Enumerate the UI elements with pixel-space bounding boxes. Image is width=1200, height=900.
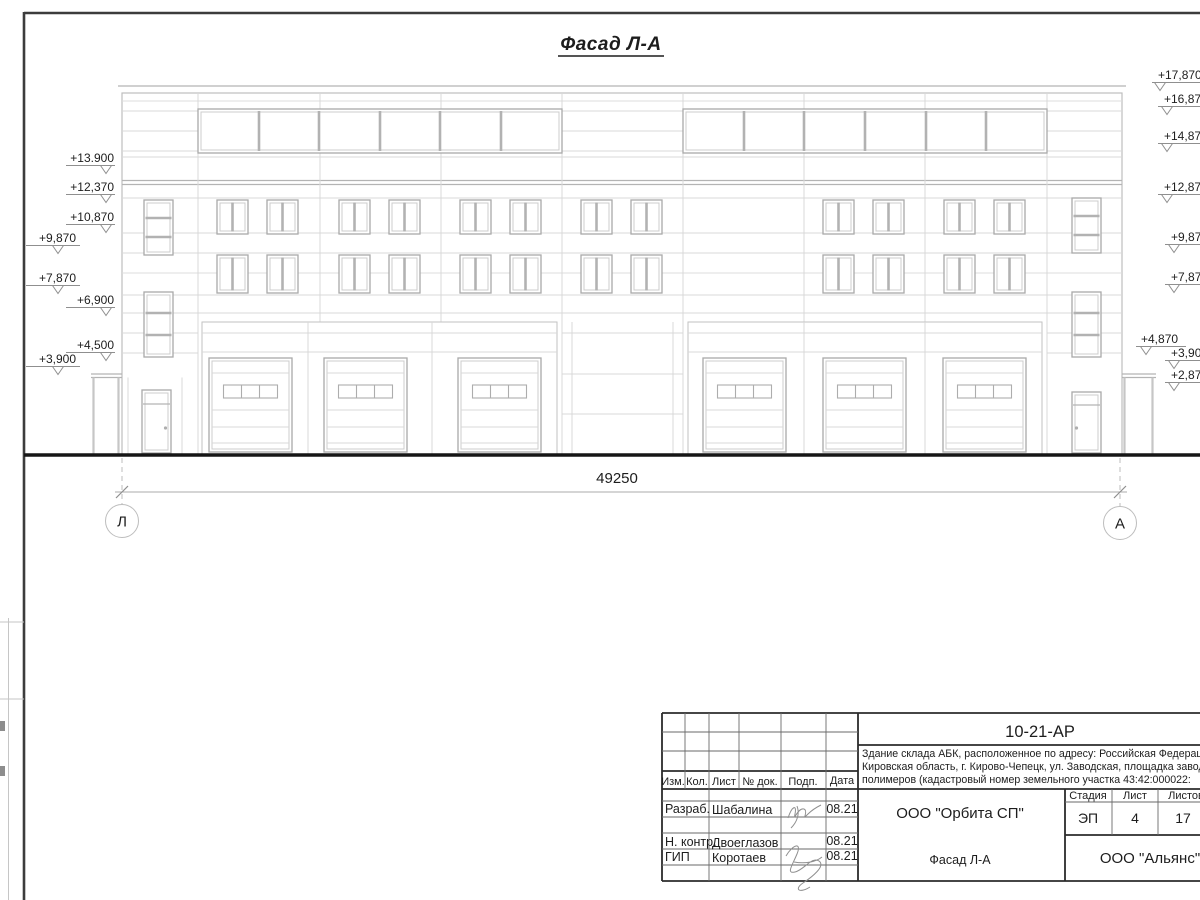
windows-upper-row [217,200,1025,234]
sheet-view-name: Фасад Л-А [929,853,991,867]
sheet-header: Лист [1123,790,1147,802]
elevation-mark: +14,870 [1158,129,1200,152]
role-ncontrol: Н. контр. [665,835,717,849]
elevation-value: +12,870 [1164,180,1200,194]
margin-stamp-fragment [0,766,5,776]
elevation-mark: +7,870 [26,271,80,294]
grid-axis-label-right: А [1115,516,1125,533]
col-header-kol: Кол. [686,776,708,788]
elevation-value: +3,900 [1171,346,1200,360]
ribbon-window-band-left [198,109,562,153]
elevation-mark: +3,900 [26,352,80,375]
elevation-value: +6,900 [77,293,114,307]
elevation-mark: +13.900 [66,151,115,174]
role-developer: Разраб. [665,802,710,816]
elevation-mark: +12,870 [1158,180,1200,203]
dimension-value: 49250 [596,470,638,487]
dimension-and-axes: 49250 Л А [106,458,1137,540]
elevation-mark: +3,900 [1165,346,1200,369]
elevation-value: +9,870 [1171,230,1200,244]
view-title: Фасад Л-А [558,34,664,56]
grid-axis-label-left: Л [117,514,127,531]
ribbon-window-band-right [683,109,1047,153]
elevation-value: +16,870 [1164,92,1200,106]
elevation-value: +4,500 [77,338,114,352]
elevation-mark: +16,870 [1158,92,1200,115]
facade-linework [24,86,1200,455]
stage-value: ЭП [1078,810,1098,826]
entrance-left [91,374,182,454]
elevation-mark: +7,870 [1165,270,1200,293]
facade-drawing-canvas: Фасад Л-А [0,0,1200,900]
elevation-mark: +9,870 [1165,230,1200,253]
name-ncontrol: Двоеглазов [712,836,779,850]
elevation-value: +7,870 [39,271,76,285]
col-header-list: Лист [712,776,736,788]
name-developer: Шабалина [712,803,772,817]
project-description-line1: Здание склада АБК, расположенное по адре… [862,748,1200,760]
date-developer: 08.21 [826,802,857,816]
elevation-value: +7,870 [1171,270,1200,284]
entry-door [1072,392,1101,453]
elevation-value: +4,870 [1141,332,1178,346]
sheet-number-value: 4 [1131,810,1139,826]
elevation-mark: +9,870 [26,231,80,254]
stage-header: Стадия [1069,790,1107,802]
elevation-mark: +2,870 [1165,368,1200,391]
date-gip: 08.21 [826,849,857,863]
elevation-value: +14,870 [1164,129,1200,143]
sheets-total-value: 17 [1175,810,1191,826]
view-title-text: Фасад Л-А [560,34,661,55]
document-number: 10-21-АР [1005,723,1075,741]
elevation-mark: +6,900 [66,293,115,316]
garage-doors [209,358,1026,452]
title-block: Изм. Кол. Лист № док. Подп. Дата Разраб.… [661,713,1200,890]
entry-door [142,390,171,453]
elevation-value: +9,870 [39,231,76,245]
name-gip: Коротаев [712,851,766,865]
elevation-value: +2,870 [1171,368,1200,382]
elevation-value: +13.900 [70,151,114,165]
elevation-value: +3,900 [39,352,76,366]
design-org-name: ООО "Орбита СП" [896,805,1024,822]
date-ncontrol: 08.21 [826,834,857,848]
drawing-sheet: Фасад Л-А [0,0,1200,900]
contractor-name: ООО "Альянс" [1100,850,1200,867]
col-header-izm: Изм. [661,776,685,788]
door-handle [1075,426,1078,429]
role-gip: ГИП [665,850,690,864]
elevation-value: +10,870 [70,210,114,224]
elevation-mark: +10,870 [66,210,115,233]
entrance-right [1072,374,1156,454]
windows-lower-row [217,255,1025,293]
elevation-value: +12,370 [70,180,114,194]
elevation-mark: +12,370 [66,180,115,203]
sheets-total-header: Листов [1168,790,1200,802]
margin-stamp-fragment [0,721,5,731]
project-description-line3: полимеров (кадастровый номер земельного … [862,774,1191,786]
elevation-value: +17,870 [1158,68,1200,82]
elevation-mark: +17,870 [1152,68,1200,91]
project-description-line2: Кировская область, г. Кирово-Чепецк, ул.… [862,761,1200,773]
col-header-podp: Подп. [788,776,817,788]
col-header-data: Дата [830,775,855,787]
elevation-marks-right: +17,870 +16,870 +14,870 +12,870 +9,870 +… [1136,68,1200,391]
elevation-marks-left: +13.900 +12,370 +10,870 +9,870 +7,870 +6… [26,151,115,375]
door-handle [164,426,167,429]
col-header-ndok: № док. [742,776,777,788]
